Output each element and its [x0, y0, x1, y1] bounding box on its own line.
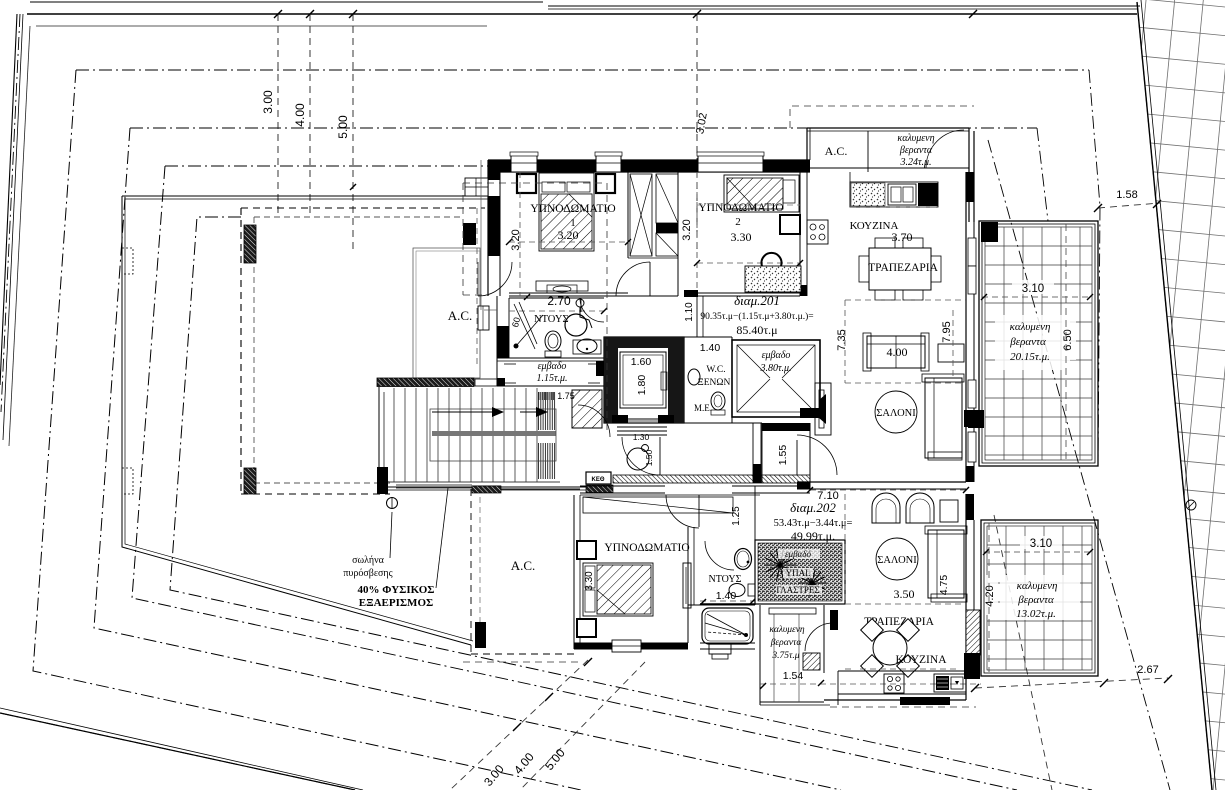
svg-text:ΞΕΝΩΝ: ΞΕΝΩΝ: [698, 378, 731, 388]
svg-text:3.80τ.μ.: 3.80τ.μ.: [759, 363, 791, 374]
svg-text:3.20: 3.20: [558, 228, 579, 242]
svg-text:13.02τ.μ.: 13.02τ.μ.: [1016, 608, 1056, 620]
svg-text:ΕΞΑΕΡΙΣΜΟΣ: ΕΞΑΕΡΙΣΜΟΣ: [359, 597, 433, 609]
svg-text:3.30: 3.30: [731, 230, 752, 244]
svg-text:1.50: 1.50: [644, 449, 654, 466]
svg-text:3.10: 3.10: [1022, 283, 1044, 295]
svg-text:πυρόσβεσης: πυρόσβεσης: [343, 568, 392, 579]
svg-text:M.E.: M.E.: [694, 403, 712, 413]
svg-text:A.C.: A.C.: [448, 308, 473, 323]
svg-text:1.75: 1.75: [557, 391, 575, 401]
svg-text:5.00: 5.00: [336, 115, 350, 139]
svg-text:1.60: 1.60: [631, 356, 652, 368]
svg-text:2.67: 2.67: [1137, 664, 1158, 676]
svg-text:2.70: 2.70: [547, 294, 571, 308]
svg-text:ΓΛΑΣΤΡΕΣ: ΓΛΑΣΤΡΕΣ: [776, 585, 819, 595]
svg-text:ΤΡΑΠΕΖΑΡΙΑ: ΤΡΑΠΕΖΑΡΙΑ: [868, 262, 939, 274]
svg-text:βεραντα: βεραντα: [899, 145, 933, 156]
svg-text:85.40τ.μ: 85.40τ.μ: [736, 323, 777, 337]
svg-text:καλυμενη: καλυμενη: [897, 133, 934, 144]
svg-text:1.15τ.μ.: 1.15τ.μ.: [536, 373, 567, 384]
svg-text:ΥΠΝΟΔΩΜΑΤΙΟ: ΥΠΝΟΔΩΜΑΤΙΟ: [530, 203, 615, 215]
svg-text:καλυμενη: καλυμενη: [769, 625, 805, 635]
svg-text:4.00: 4.00: [887, 345, 908, 359]
svg-text:49.99τ.μ.: 49.99τ.μ.: [791, 529, 835, 543]
svg-text:4.00: 4.00: [293, 103, 307, 127]
svg-text:καλυμενη: καλυμενη: [1017, 580, 1058, 592]
svg-text:1.30: 1.30: [633, 432, 650, 442]
svg-text:ΚΕΘ: ΚΕΘ: [591, 477, 604, 483]
svg-text:3.20: 3.20: [681, 219, 693, 240]
svg-text:3.10: 3.10: [1030, 538, 1052, 550]
svg-text:ΥΠΝΟΔΩΜΑΤΙΟ: ΥΠΝΟΔΩΜΑΤΙΟ: [698, 202, 783, 214]
svg-text:4.20: 4.20: [984, 585, 996, 606]
svg-text:20.15τ.μ.: 20.15τ.μ.: [1010, 351, 1050, 363]
svg-text:καλυμενη: καλυμενη: [1010, 321, 1051, 333]
svg-text:εμβαδο: εμβαδο: [538, 361, 567, 372]
svg-text:90.35τ.μ−(1.15τ.μ+3.80τ.μ.)=: 90.35τ.μ−(1.15τ.μ+3.80τ.μ.)=: [700, 311, 813, 322]
svg-text:4.75: 4.75: [938, 575, 950, 596]
svg-text:53.43τ.μ−3.44τ.μ=: 53.43τ.μ−3.44τ.μ=: [774, 518, 853, 529]
svg-text:2: 2: [735, 216, 741, 228]
svg-text:ΚΟΥΖΙΝΑ: ΚΟΥΖΙΝΑ: [895, 654, 947, 666]
svg-text:1.10: 1.10: [684, 302, 695, 322]
svg-text:7.95: 7.95: [941, 321, 953, 342]
svg-text:διαμ.202: διαμ.202: [790, 500, 836, 515]
svg-text:εμβαδο: εμβαδο: [762, 350, 791, 361]
svg-text:1.55: 1.55: [777, 445, 789, 466]
svg-text:3.75τ.μ: 3.75τ.μ: [771, 651, 799, 661]
svg-text:ΥΠΝΟΔΩΜΑΤΙΟ: ΥΠΝΟΔΩΜΑΤΙΟ: [604, 542, 689, 554]
svg-text:διαμ.201: διαμ.201: [734, 293, 780, 308]
svg-text:40% ΦΥΣΙΚΟΣ: 40% ΦΥΣΙΚΟΣ: [358, 584, 435, 596]
svg-text:ΣΑΛΟΝΙ: ΣΑΛΟΝΙ: [876, 408, 916, 419]
svg-text:6.50: 6.50: [1062, 329, 1074, 350]
svg-text:W.C.: W.C.: [706, 365, 725, 375]
svg-text:A.C.: A.C.: [511, 558, 536, 573]
svg-text:1.40: 1.40: [700, 342, 721, 354]
svg-text:1.58: 1.58: [1116, 189, 1137, 201]
svg-text:3.00: 3.00: [261, 90, 275, 114]
svg-text:7.35: 7.35: [836, 329, 848, 350]
svg-text:A.C.: A.C.: [825, 144, 848, 158]
svg-text:ΣΑΛΟΝΙ: ΣΑΛΟΝΙ: [877, 555, 917, 566]
svg-text:1.80: 1.80: [636, 375, 648, 396]
svg-text:σωλήνα: σωλήνα: [352, 555, 384, 566]
svg-text:εμβαδό: εμβαδό: [785, 549, 811, 559]
svg-text:ΥΠΑΙ.: ΥΠΑΙ.: [786, 568, 811, 578]
svg-text:βεραντα: βεραντα: [1017, 594, 1054, 606]
svg-text:βεραντα: βεραντα: [1009, 336, 1046, 348]
svg-text:1.54: 1.54: [783, 670, 804, 682]
svg-text:3.30: 3.30: [584, 571, 595, 591]
svg-text:3.50: 3.50: [894, 587, 915, 601]
svg-text:βεραντα: βεραντα: [770, 638, 803, 648]
